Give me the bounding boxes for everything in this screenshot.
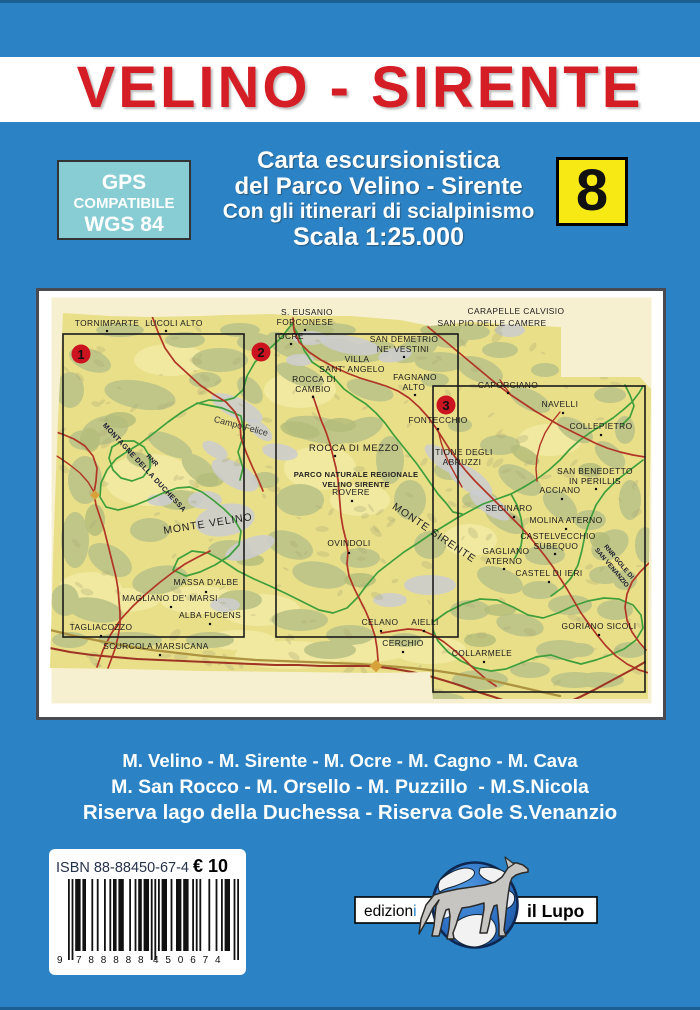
svg-text:ALTO: ALTO [403, 382, 426, 392]
svg-text:ROCCA DI: ROCCA DI [292, 374, 336, 384]
svg-text:8: 8 [88, 955, 94, 966]
svg-text:9: 9 [57, 955, 63, 966]
svg-text:VILLA: VILLA [345, 354, 370, 364]
svg-text:NE' VESTINI: NE' VESTINI [377, 344, 430, 354]
svg-text:5: 5 [165, 955, 171, 966]
svg-text:SAN PIO DELLE CAMERE: SAN PIO DELLE CAMERE [438, 318, 547, 328]
svg-text:GAGLIANO: GAGLIANO [483, 546, 530, 556]
svg-text:4: 4 [215, 955, 221, 966]
svg-text:SUBEQUO: SUBEQUO [534, 541, 579, 551]
svg-text:il Lupo: il Lupo [527, 901, 584, 921]
svg-text:OVINDOLI: OVINDOLI [327, 538, 370, 548]
svg-text:8: 8 [101, 955, 107, 966]
svg-text:CASTEL DI IERI: CASTEL DI IERI [515, 568, 582, 578]
svg-text:SANT' ANGELO: SANT' ANGELO [319, 364, 385, 374]
svg-text:SECINARO: SECINARO [486, 503, 533, 513]
svg-text:FORCONESE: FORCONESE [277, 317, 334, 327]
svg-text:ALBA FUCENS: ALBA FUCENS [179, 610, 241, 620]
svg-text:CELANO: CELANO [362, 617, 399, 627]
svg-text:OCRE: OCRE [278, 331, 304, 341]
svg-text:PARCO NATURALE REGIONALE: PARCO NATURALE REGIONALE [294, 470, 419, 479]
svg-text:COLLEPIETRO: COLLEPIETRO [569, 421, 632, 431]
svg-text:COLLARMELE: COLLARMELE [452, 648, 512, 658]
svg-text:FONTECCHIO: FONTECCHIO [408, 415, 467, 425]
svg-text:CERCHIO: CERCHIO [382, 638, 424, 648]
svg-text:4: 4 [153, 955, 159, 966]
svg-text:8: 8 [126, 955, 132, 966]
svg-text:8: 8 [113, 955, 119, 966]
svg-text:AIELLI: AIELLI [411, 617, 439, 627]
svg-text:2: 2 [257, 345, 264, 360]
svg-text:CASTELVECCHIO: CASTELVECCHIO [520, 531, 595, 541]
svg-text:8: 8 [138, 955, 144, 966]
svg-text:7: 7 [76, 955, 82, 966]
svg-text:MASSA D'ALBE: MASSA D'ALBE [173, 577, 238, 587]
svg-text:edizioni: edizioni [364, 903, 417, 920]
svg-text:6: 6 [190, 955, 196, 966]
svg-text:ACCIANO: ACCIANO [540, 485, 581, 495]
svg-text:1: 1 [77, 347, 84, 362]
svg-text:ROCCA DI MEZZO: ROCCA DI MEZZO [309, 443, 399, 454]
svg-text:SAN BENEDETTO: SAN BENEDETTO [557, 466, 633, 476]
svg-text:ATERNO: ATERNO [486, 556, 523, 566]
svg-text:VELINO SIRENTE: VELINO SIRENTE [322, 480, 390, 489]
svg-text:NAVELLI: NAVELLI [542, 399, 579, 409]
svg-text:FAGNANO: FAGNANO [393, 372, 437, 382]
svg-text:0: 0 [178, 955, 184, 966]
svg-text:LUCOLI ALTO: LUCOLI ALTO [145, 318, 203, 328]
svg-text:SCURCOLA MARSICANA: SCURCOLA MARSICANA [103, 641, 208, 651]
svg-text:CAMBIO: CAMBIO [295, 384, 331, 394]
svg-text:MAGLIANO DE' MARSI: MAGLIANO DE' MARSI [122, 593, 218, 603]
svg-text:S. EUSANIO: S. EUSANIO [281, 307, 333, 317]
svg-text:SAN DEMETRIO: SAN DEMETRIO [370, 334, 439, 344]
svg-text:CARAPELLE CALVISIO: CARAPELLE CALVISIO [468, 306, 565, 316]
svg-text:CAPORCIANO: CAPORCIANO [478, 380, 538, 390]
svg-text:ABRUZZI: ABRUZZI [443, 457, 482, 467]
svg-text:MOLINA ATERNO: MOLINA ATERNO [530, 515, 603, 525]
svg-text:3: 3 [442, 398, 449, 413]
svg-text:TAGLIACOZZO: TAGLIACOZZO [70, 622, 133, 632]
svg-text:TIONE DEGLI: TIONE DEGLI [435, 447, 492, 457]
svg-text:7: 7 [203, 955, 209, 966]
svg-text:TORNIMPARTE: TORNIMPARTE [75, 318, 139, 328]
svg-text:GORIANO SICOLI: GORIANO SICOLI [562, 621, 637, 631]
